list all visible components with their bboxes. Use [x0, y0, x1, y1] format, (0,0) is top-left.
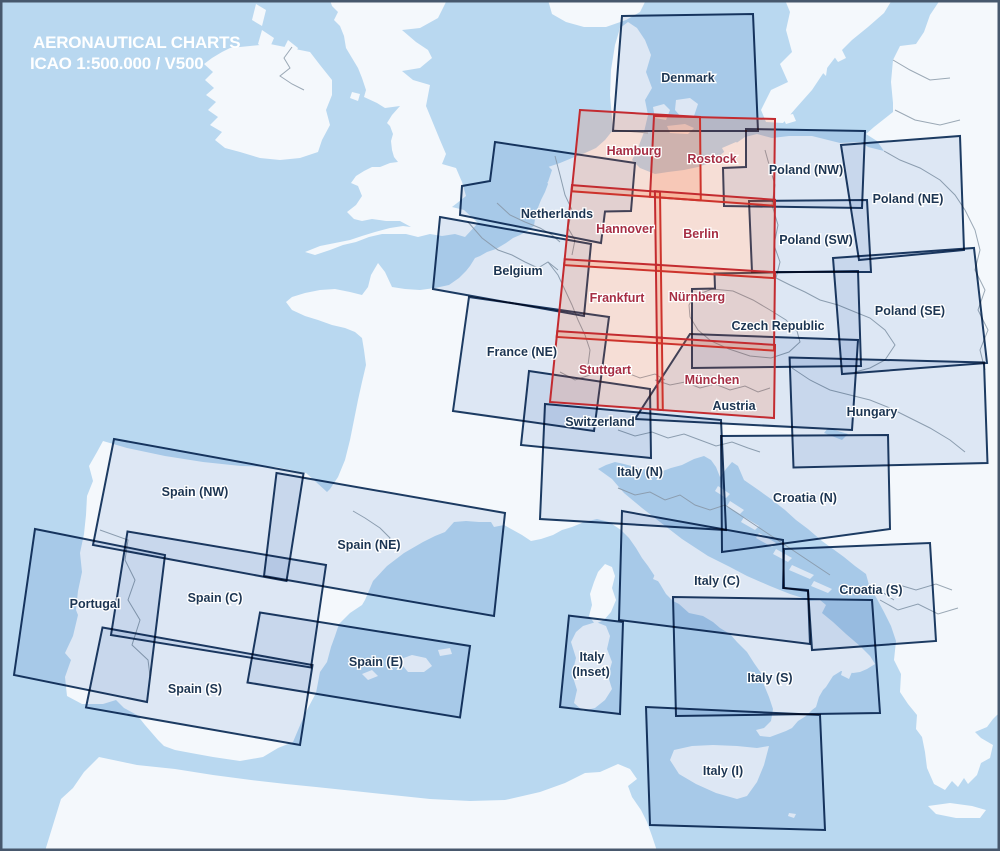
svg-text:Italy (C): Italy (C)	[694, 574, 740, 588]
svg-text:Croatia (S): Croatia (S)	[839, 583, 902, 597]
svg-text:Poland (NW): Poland (NW)	[769, 163, 843, 177]
svg-text:Hamburg: Hamburg	[607, 144, 662, 158]
svg-text:Denmark: Denmark	[661, 71, 715, 85]
svg-text:Stuttgart: Stuttgart	[579, 363, 632, 377]
svg-text:Italy: Italy	[579, 650, 604, 664]
svg-text:(Inset): (Inset)	[572, 665, 610, 679]
svg-text:Spain (S): Spain (S)	[168, 682, 222, 696]
svg-text:Nürnberg: Nürnberg	[669, 290, 725, 304]
svg-text:München: München	[685, 373, 740, 387]
svg-text:Poland (SE): Poland (SE)	[875, 304, 945, 318]
svg-text:Spain (NW): Spain (NW)	[162, 485, 229, 499]
svg-text:Poland (SW): Poland (SW)	[779, 233, 853, 247]
svg-text:France (NE): France (NE)	[487, 345, 557, 359]
svg-text:Spain (C): Spain (C)	[188, 591, 243, 605]
svg-text:Switzerland: Switzerland	[565, 415, 634, 429]
svg-text:Berlin: Berlin	[683, 227, 718, 241]
svg-text:Italy (S): Italy (S)	[747, 671, 792, 685]
svg-text:Belgium: Belgium	[493, 264, 542, 278]
svg-text:Poland (NE): Poland (NE)	[873, 192, 944, 206]
svg-text:ICAO 1:500.000 / V500: ICAO 1:500.000 / V500	[30, 54, 203, 73]
svg-text:Czech Republic: Czech Republic	[731, 319, 824, 333]
svg-text:Spain (NE): Spain (NE)	[337, 538, 400, 552]
svg-text:Spain (E): Spain (E)	[349, 655, 403, 669]
svg-text:AERONAUTICAL CHARTS: AERONAUTICAL CHARTS	[33, 33, 240, 52]
svg-text:Rostock: Rostock	[687, 152, 736, 166]
svg-text:Croatia (N): Croatia (N)	[773, 491, 837, 505]
svg-text:Italy (I): Italy (I)	[703, 764, 743, 778]
svg-text:Hungary: Hungary	[847, 405, 898, 419]
svg-text:Italy (N): Italy (N)	[617, 465, 663, 479]
svg-text:Austria: Austria	[712, 399, 756, 413]
svg-text:Frankfurt: Frankfurt	[590, 291, 646, 305]
svg-text:Hannover: Hannover	[596, 222, 654, 236]
svg-text:Netherlands: Netherlands	[521, 207, 593, 221]
svg-text:Portugal: Portugal	[70, 597, 121, 611]
